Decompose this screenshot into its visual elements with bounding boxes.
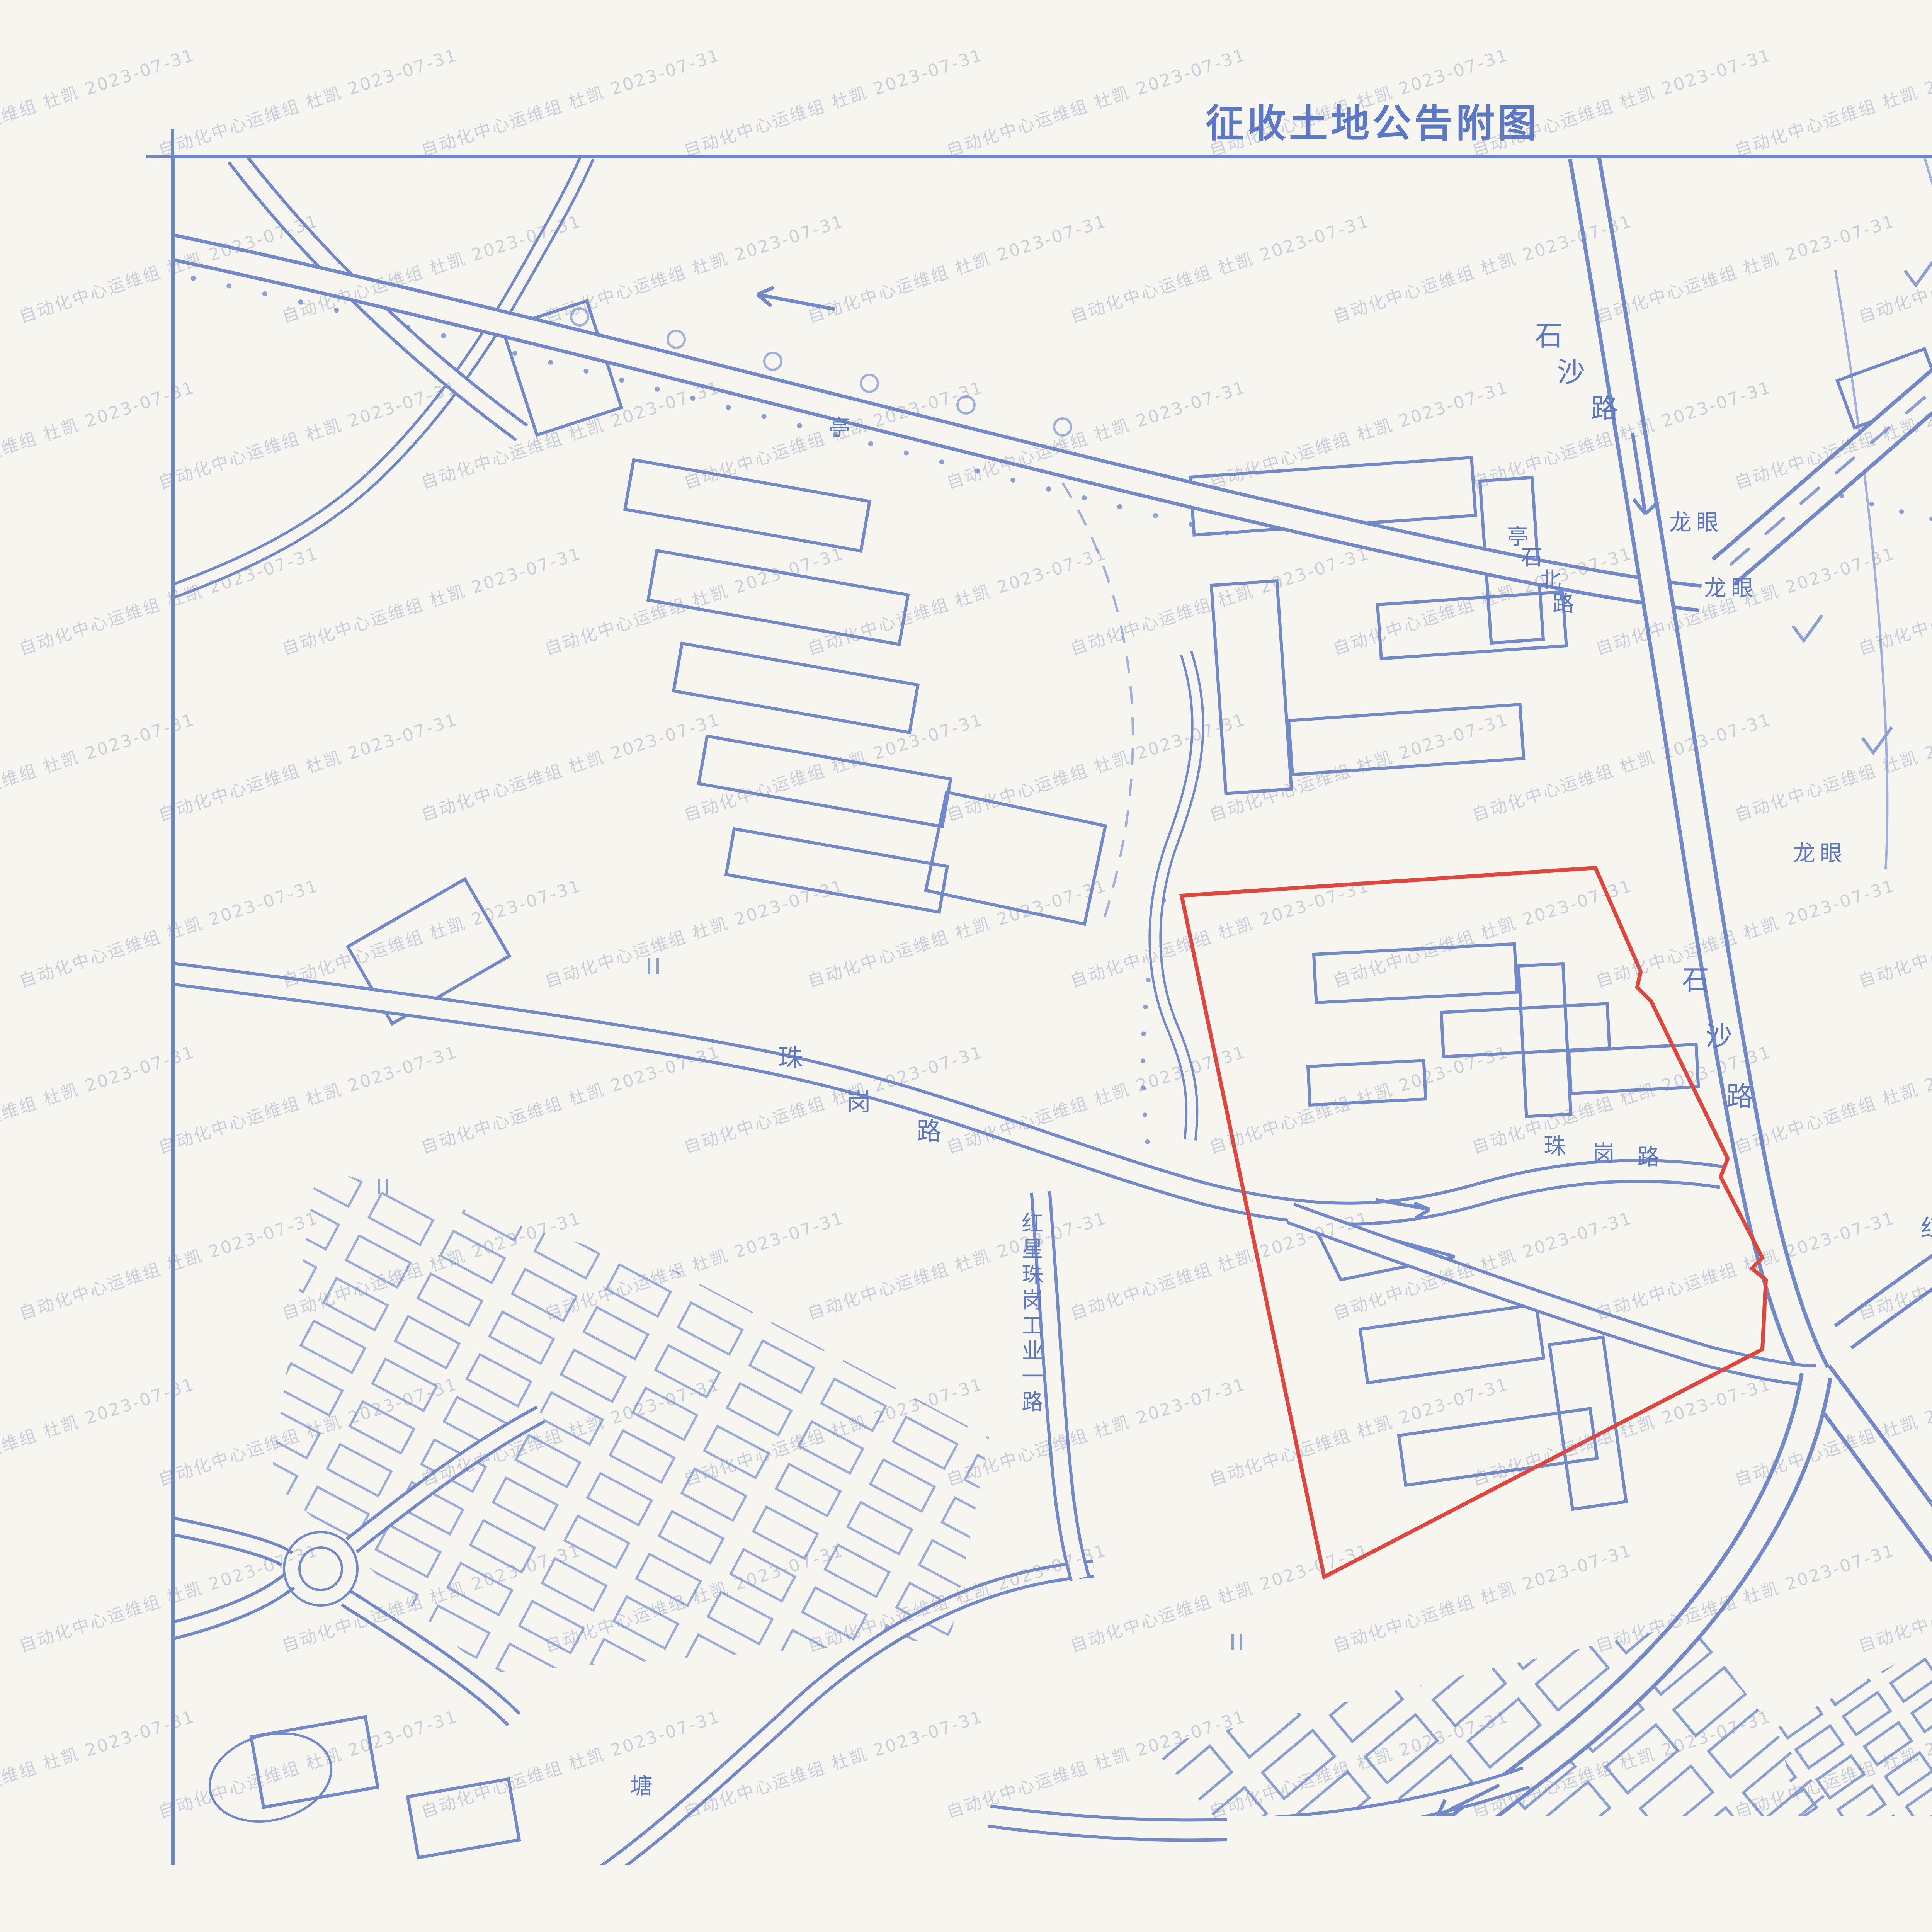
map-label: 石 xyxy=(1535,320,1563,352)
roundabout xyxy=(284,1532,357,1605)
map-linework: 石沙路石沙路石沙路亭石北路亭珠岗路珠岗路红星珠岗工业一路红星大街红星庆丰三龙眼龙… xyxy=(173,156,1932,1932)
map-label: 一 xyxy=(1022,1364,1043,1389)
red-boundary-polygon xyxy=(1182,868,1766,1577)
map-label: 路 xyxy=(1590,392,1618,425)
map-label: 路 xyxy=(1022,1390,1043,1415)
roads xyxy=(173,156,1932,1932)
map-label: 珠 xyxy=(1022,1262,1043,1287)
map-label: 业 xyxy=(1022,1339,1043,1364)
page-title: 征收土地公告附图 xyxy=(1206,92,1539,148)
map-label: 亭 xyxy=(828,415,850,440)
map-label: 庆 xyxy=(1668,1922,1690,1932)
map-label: 北 xyxy=(1539,568,1561,593)
map-label: 珠 xyxy=(1544,1133,1566,1159)
map-label: 沙 xyxy=(1705,1020,1732,1052)
map-label: 路 xyxy=(1726,1081,1753,1112)
map-label: 龙眼 xyxy=(1793,840,1847,866)
map-label: 龙眼 xyxy=(1669,509,1723,536)
map-canvas: 石沙路石沙路石沙路亭石北路亭珠岗路珠岗路红星珠岗工业一路红星大街红星庆丰三龙眼龙… xyxy=(0,0,1932,1932)
orchard-symbols xyxy=(1793,256,1932,942)
map-label: 岗 xyxy=(846,1088,871,1117)
map-label: 路 xyxy=(917,1117,941,1146)
blocks-west xyxy=(270,1167,989,1673)
scanned-land-acquisition-map: 石沙路石沙路石沙路亭石北路亭珠岗路珠岗路红星珠岗工业一路红星大街红星庆丰三龙眼龙… xyxy=(0,0,1932,1932)
map-label: 工 xyxy=(1022,1313,1043,1338)
map-label: 塘 xyxy=(554,1897,577,1923)
map-label: 红 xyxy=(1022,1211,1043,1236)
map-label: 石 xyxy=(1682,964,1709,996)
map-label: 岗 xyxy=(1022,1288,1043,1313)
map-label: 塘 xyxy=(630,1773,653,1799)
map-label: 红 xyxy=(1921,1214,1932,1242)
map-label: 龙眼 xyxy=(1704,575,1758,601)
map-label: 星 xyxy=(1022,1237,1043,1262)
map-label: 石 xyxy=(1521,545,1543,570)
map-label: 沙 xyxy=(1557,356,1585,388)
map-label: 三 xyxy=(1720,1877,1742,1902)
map-label: 路 xyxy=(1637,1144,1660,1170)
map-label: 丰 xyxy=(1689,1901,1711,1926)
map-label: 珠 xyxy=(778,1044,803,1073)
map-label: 岗 xyxy=(1592,1140,1615,1166)
map-label: 路 xyxy=(1553,592,1574,617)
